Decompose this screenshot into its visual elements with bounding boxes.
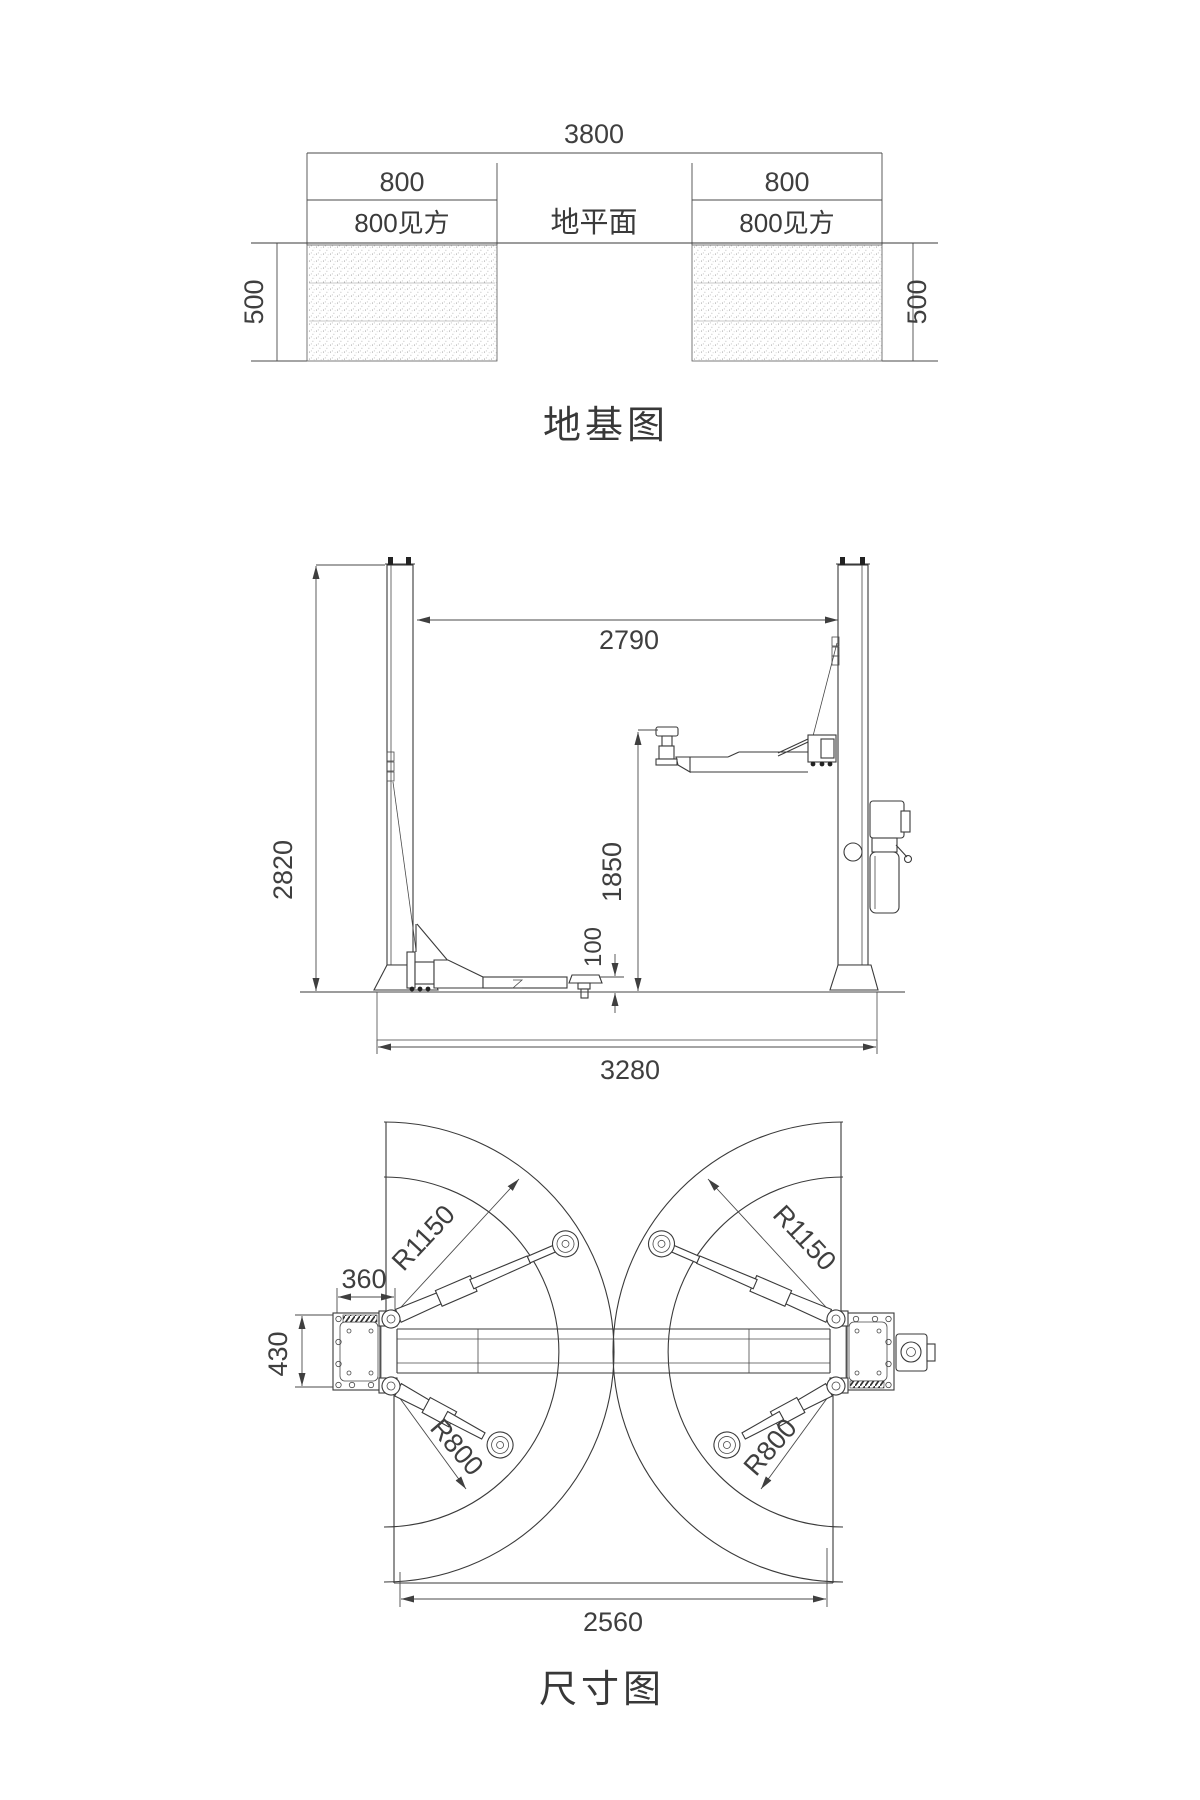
block-square-label-left: 800见方: [354, 208, 449, 238]
foundation-block-right: [692, 245, 882, 361]
dim-inner-width: 2560: [583, 1607, 643, 1637]
dim-depth-right: 500: [902, 279, 932, 324]
right-carriage-arm: [656, 727, 836, 772]
dim-block-width-right: 800: [764, 167, 809, 197]
ground-plane-label: 地平面: [550, 206, 637, 239]
elevation-view: 2820 2790 1850 100 3280: [268, 557, 912, 1085]
right-post: [813, 557, 878, 990]
right-base-plate: [847, 1313, 894, 1390]
dim-lift-height: 1850: [597, 842, 627, 902]
dim-overall-height: 2820: [268, 840, 298, 900]
technical-drawing: 3800 800 800 800见方 800见方 地平面 500 500 地基图: [0, 0, 1200, 1800]
dim-post-clearance: 2790: [599, 625, 659, 655]
arm-sweep-arcs: [384, 1122, 843, 1583]
left-carriage-arm: [407, 924, 602, 998]
foundation-view: 3800 800 800 800见方 800见方 地平面 500 500 地基图: [239, 119, 938, 447]
dim-long-arm-radius-left: R1150: [386, 1199, 461, 1276]
dim-block-width-left: 800: [379, 167, 424, 197]
dim-total-width: 3800: [564, 119, 624, 149]
power-unit-plan: [896, 1334, 935, 1371]
dim-depth-left: 500: [239, 279, 269, 324]
dim-base-width: 3280: [600, 1055, 660, 1085]
dim-post-front-offset: 360: [341, 1264, 386, 1294]
power-unit: [870, 801, 912, 913]
left-post: [374, 557, 438, 990]
dim-long-arm-radius-right: R1150: [767, 1199, 842, 1276]
foundation-block-left: [307, 245, 497, 361]
dim-short-arm-radius-right: R800: [738, 1413, 803, 1481]
left-base-plate: [333, 1313, 380, 1390]
dim-min-pad-height: 100: [580, 927, 607, 967]
block-square-label-right: 800见方: [739, 208, 834, 238]
plan-title: 尺寸图: [539, 1669, 665, 1711]
dim-short-arm-radius-left: R800: [424, 1413, 489, 1481]
elevation-ground: [300, 992, 905, 1040]
foundation-title: 地基图: [543, 405, 669, 447]
drawing-sheet: 3800 800 800 800见方 800见方 地平面 500 500 地基图: [0, 0, 1200, 1800]
plan-view: R1150 R1150 R800 R800 360 430 2560 尺寸图: [263, 1122, 935, 1711]
dim-base-plate-depth: 430: [263, 1331, 293, 1376]
